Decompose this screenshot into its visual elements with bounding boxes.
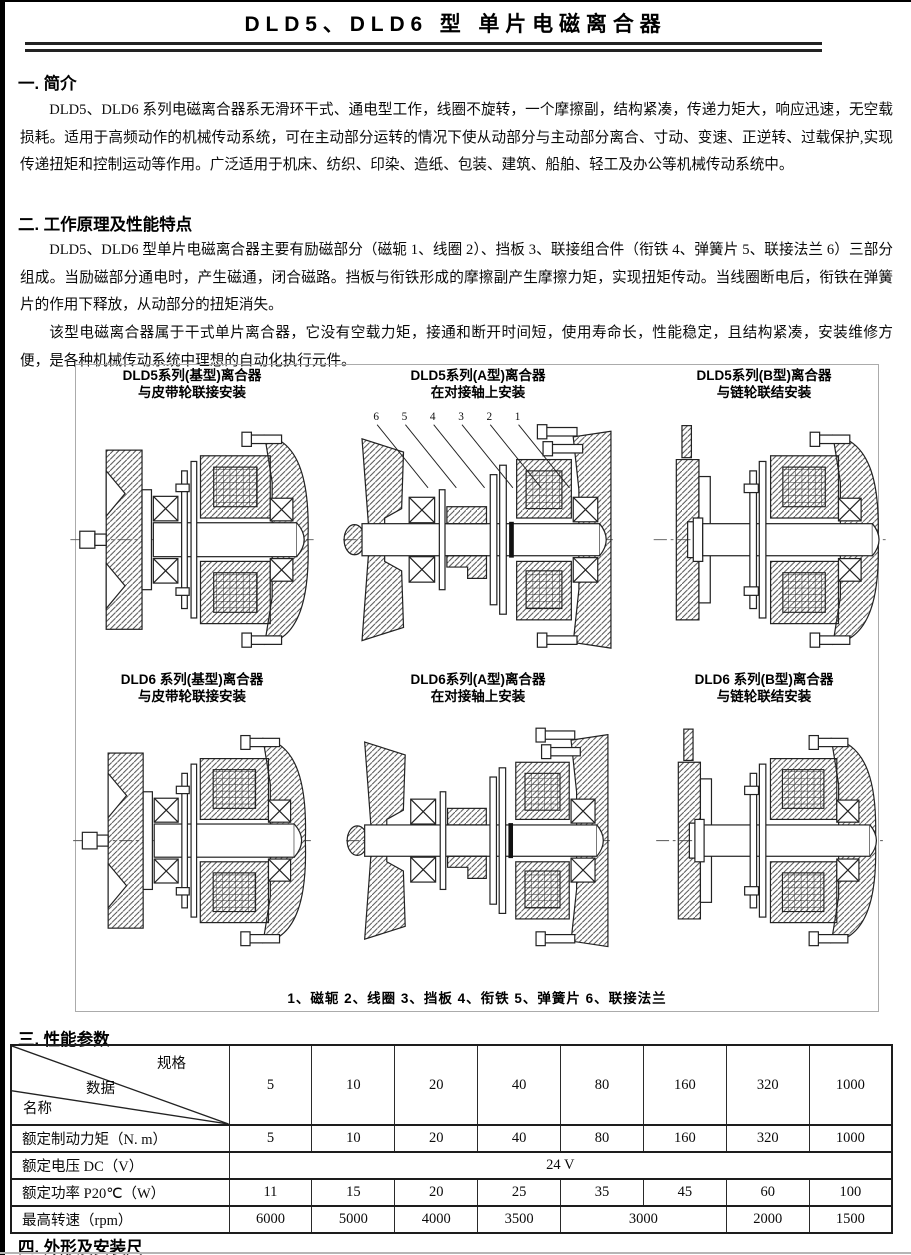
diagram-caption: DLD5系列(A型)离合器 在对接轴上安装 — [330, 367, 626, 401]
section-heading-principle: 二. 工作原理及性能特点 — [18, 211, 192, 235]
title-double-rule — [25, 42, 822, 52]
corner-label-name: 名称 — [23, 1097, 52, 1118]
value-cell: 80 — [561, 1125, 644, 1152]
caption-line: 在对接轴上安装 — [330, 688, 626, 705]
performance-parameters-table: 规格 数据 名称 5 10 20 40 80 160 320 1000 额定制动… — [10, 1044, 893, 1234]
value-cell: 6000 — [229, 1206, 312, 1233]
svg-text:6: 6 — [373, 411, 379, 423]
value-cell: 1000 — [809, 1125, 892, 1152]
table-header-row: 规格 数据 名称 5 10 20 40 80 160 320 1000 — [11, 1045, 892, 1125]
clutch-cross-section-drawing — [336, 707, 620, 965]
caption-line: DLD6 系列(B型)离合器 — [626, 671, 902, 688]
clutch-cross-section-drawing — [63, 403, 321, 667]
intro-paragraph: DLD5、DLD6 系列电磁离合器系无滑环干式、通电型工作，线圈不旋转，一个摩擦… — [20, 97, 893, 180]
table-row: 额定制动力矩（N. m）5102040801603201000 — [11, 1125, 892, 1152]
svg-text:3: 3 — [458, 411, 464, 423]
caption-line: DLD6 系列(基型)离合器 — [54, 671, 330, 688]
section-heading-intro: 一. 简介 — [18, 70, 77, 94]
value-cell: 100 — [809, 1179, 892, 1206]
caption-line: 在对接轴上安装 — [330, 384, 626, 401]
diagram-dld5-b: DLD5系列(B型)离合器 与链轮联结安装 — [626, 367, 902, 667]
caption-line: DLD6系列(A型)离合器 — [330, 671, 626, 688]
svg-text:4: 4 — [430, 411, 436, 423]
diagram-dld5-a: DLD5系列(A型)离合器 在对接轴上安装 654321 — [330, 367, 626, 667]
diagram-caption: DLD6系列(A型)离合器 在对接轴上安装 — [330, 671, 626, 705]
spec-column-header: 320 — [726, 1045, 809, 1125]
clutch-cross-section-drawing — [635, 403, 893, 667]
value-cell: 25 — [478, 1179, 561, 1206]
diagram-dld6-a: DLD6系列(A型)离合器 在对接轴上安装 — [330, 671, 626, 965]
value-cell: 45 — [643, 1179, 726, 1206]
spec-column-header: 1000 — [809, 1045, 892, 1125]
spec-column-header: 5 — [229, 1045, 312, 1125]
value-cell: 1500 — [809, 1206, 892, 1233]
parts-legend: 1、磁轭 2、线圈 3、挡板 4、衔铁 5、弹簧片 6、联接法兰 — [76, 987, 878, 1007]
page-title: DLD5、DLD6 型 单片电磁离合器 — [0, 8, 911, 38]
value-cell: 20 — [395, 1125, 478, 1152]
diagram-caption: DLD6 系列(B型)离合器 与链轮联结安装 — [626, 671, 902, 705]
value-cell: 320 — [726, 1125, 809, 1152]
clutch-cross-section-drawing — [635, 707, 893, 965]
page-top-border — [0, 0, 911, 2]
value-cell: 5 — [229, 1125, 312, 1152]
spec-column-header: 10 — [312, 1045, 395, 1125]
corner-label-data: 数据 — [86, 1077, 115, 1098]
document-page: DLD5、DLD6 型 单片电磁离合器 一. 简介 DLD5、DLD6 系列电磁… — [0, 0, 911, 1255]
table-row: 额定功率 P20℃（W）11152025354560100 — [11, 1179, 892, 1206]
value-cell: 15 — [312, 1179, 395, 1206]
caption-line: 与链轮联结安装 — [626, 384, 902, 401]
row-label: 额定功率 P20℃（W） — [11, 1179, 229, 1206]
page-bottom-rule — [0, 1252, 911, 1254]
value-cell: 24 V — [229, 1152, 892, 1179]
diagram-caption: DLD5系列(基型)离合器 与皮带轮联接安装 — [54, 367, 330, 401]
svg-text:5: 5 — [402, 411, 408, 423]
diagram-grid: DLD5系列(基型)离合器 与皮带轮联接安装 DLD5系列(A型)离合器 在对接… — [54, 367, 902, 965]
value-cell: 10 — [312, 1125, 395, 1152]
row-label: 最高转速（rpm） — [11, 1206, 229, 1233]
value-cell: 20 — [395, 1179, 478, 1206]
caption-line: 与链轮联结安装 — [626, 688, 902, 705]
caption-line: 与皮带轮联接安装 — [54, 688, 330, 705]
page-left-border — [0, 0, 5, 1255]
spec-column-header: 40 — [478, 1045, 561, 1125]
svg-text:2: 2 — [486, 411, 492, 423]
value-cell: 160 — [643, 1125, 726, 1152]
diagram-caption: DLD6 系列(基型)离合器 与皮带轮联接安装 — [54, 671, 330, 705]
principle-paragraph-1: DLD5、DLD6 型单片电磁离合器主要有励磁部分（磁轭 1、线圈 2）、挡板 … — [20, 237, 893, 320]
spec-column-header: 80 — [561, 1045, 644, 1125]
spec-column-header: 20 — [395, 1045, 478, 1125]
value-cell: 3500 — [478, 1206, 561, 1233]
table-corner-cell: 规格 数据 名称 — [11, 1045, 229, 1125]
value-cell: 35 — [561, 1179, 644, 1206]
row-label: 额定制动力矩（N. m） — [11, 1125, 229, 1152]
diagram-dld6-b: DLD6 系列(B型)离合器 与链轮联结安装 — [626, 671, 902, 965]
caption-line: 与皮带轮联接安装 — [54, 384, 330, 401]
diagram-dld5-base: DLD5系列(基型)离合器 与皮带轮联接安装 — [54, 367, 330, 667]
table-row: 额定电压 DC（V）24 V — [11, 1152, 892, 1179]
value-cell: 11 — [229, 1179, 312, 1206]
caption-line: DLD5系列(A型)离合器 — [330, 367, 626, 384]
caption-line: DLD5系列(基型)离合器 — [54, 367, 330, 384]
diagram-dld6-base: DLD6 系列(基型)离合器 与皮带轮联接安装 — [54, 671, 330, 965]
svg-text:1: 1 — [515, 411, 521, 423]
value-cell: 40 — [478, 1125, 561, 1152]
row-label: 额定电压 DC（V） — [11, 1152, 229, 1179]
installation-diagrams-figure: DLD5系列(基型)离合器 与皮带轮联接安装 DLD5系列(A型)离合器 在对接… — [75, 364, 879, 1012]
value-cell: 4000 — [395, 1206, 478, 1233]
value-cell: 2000 — [726, 1206, 809, 1233]
value-cell: 5000 — [312, 1206, 395, 1233]
value-cell: 60 — [726, 1179, 809, 1206]
caption-line: DLD5系列(B型)离合器 — [626, 367, 902, 384]
spec-column-header: 160 — [643, 1045, 726, 1125]
diagram-caption: DLD5系列(B型)离合器 与链轮联结安装 — [626, 367, 902, 401]
clutch-cross-section-drawing — [63, 707, 321, 965]
clutch-cross-section-drawing: 654321 — [336, 403, 620, 667]
corner-label-spec: 规格 — [157, 1052, 186, 1073]
table-row: 最高转速（rpm）6000500040003500300020001500 — [11, 1206, 892, 1233]
value-cell: 3000 — [561, 1206, 727, 1233]
